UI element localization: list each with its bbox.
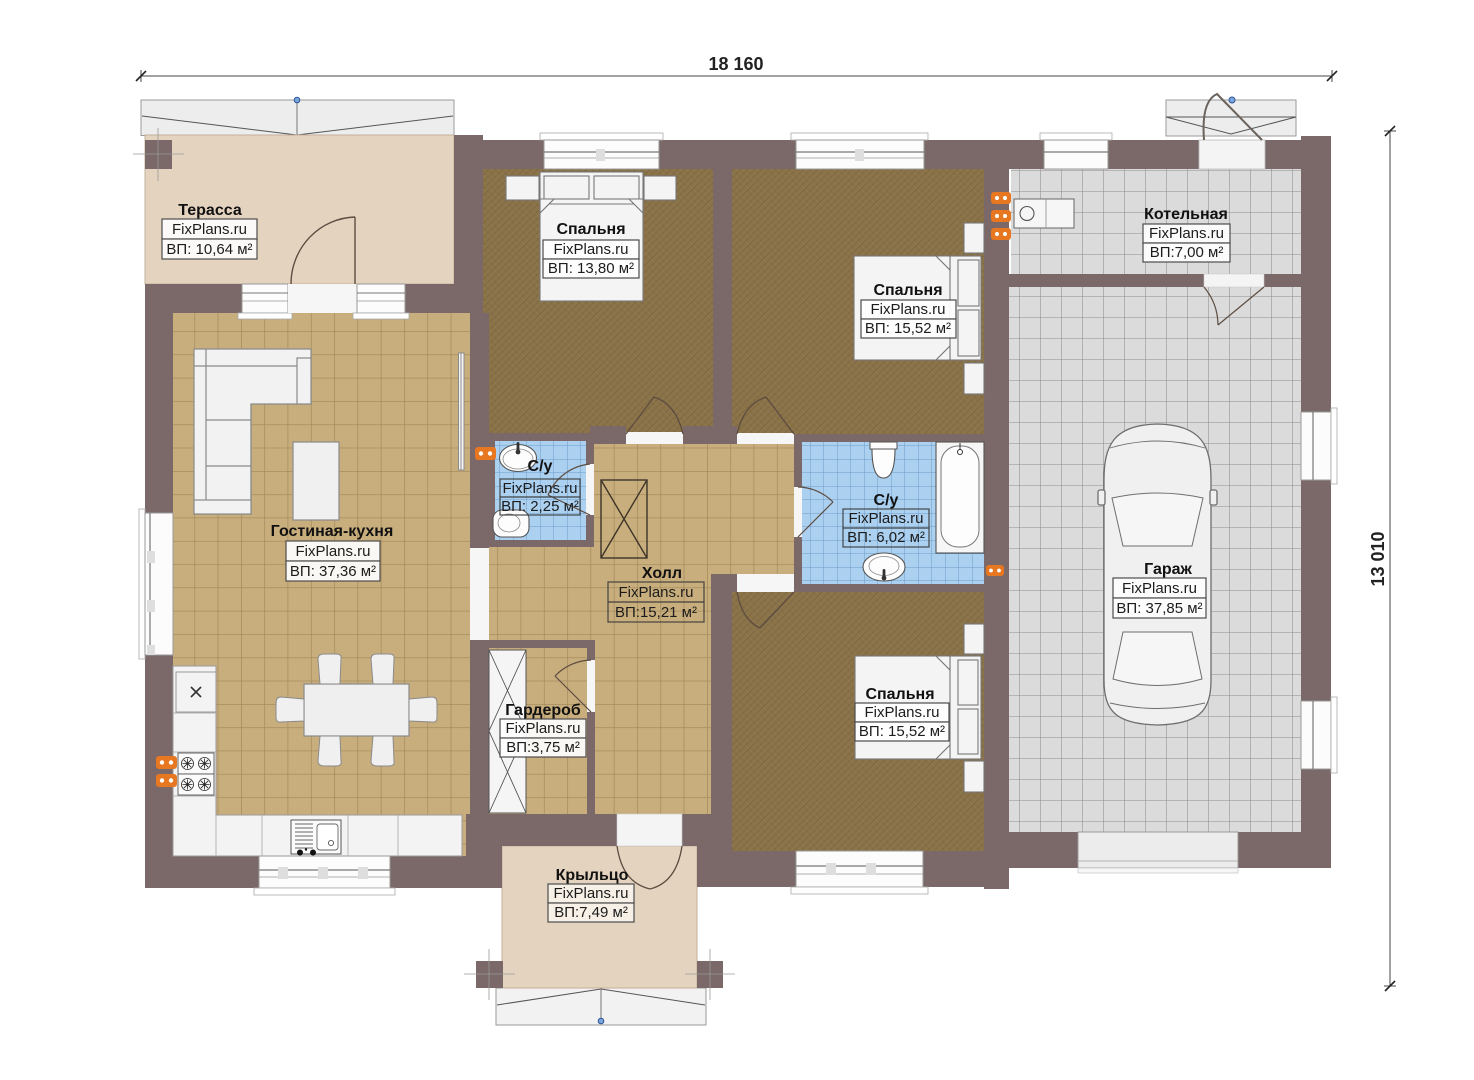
svg-text:FixPlans.ru: FixPlans.ru (1149, 225, 1224, 242)
svg-text:ВП: 15,52 м²: ВП: 15,52 м² (865, 320, 951, 337)
svg-text:Гостиная-кухня: Гостиная-кухня (271, 523, 394, 540)
svg-text:13 010: 13 010 (1368, 531, 1388, 586)
svg-text:FixPlans.ru: FixPlans.ru (870, 301, 945, 318)
svg-text:FixPlans.ru: FixPlans.ru (172, 221, 247, 238)
svg-text:ВП: 37,85 м²: ВП: 37,85 м² (1116, 600, 1202, 617)
svg-text:FixPlans.ru: FixPlans.ru (295, 543, 370, 560)
svg-text:ВП: 6,02 м²: ВП: 6,02 м² (847, 529, 925, 546)
svg-text:С/у: С/у (528, 458, 553, 475)
svg-text:18 160: 18 160 (708, 54, 763, 74)
svg-text:ВП:7,00 м²: ВП:7,00 м² (1150, 244, 1224, 261)
svg-text:Терасса: Терасса (178, 202, 242, 219)
svg-text:Холл: Холл (642, 565, 682, 582)
svg-text:С/у: С/у (874, 492, 899, 509)
svg-text:ВП:7,49 м²: ВП:7,49 м² (554, 904, 628, 921)
svg-text:FixPlans.ru: FixPlans.ru (618, 584, 693, 601)
svg-text:FixPlans.ru: FixPlans.ru (864, 704, 939, 721)
svg-text:Спальня: Спальня (556, 221, 625, 238)
svg-text:FixPlans.ru: FixPlans.ru (505, 720, 580, 737)
svg-text:ВП: 10,64 м²: ВП: 10,64 м² (166, 241, 252, 258)
svg-text:Спальня: Спальня (865, 686, 934, 703)
svg-text:Гардероб: Гардероб (505, 702, 581, 719)
svg-text:FixPlans.ru: FixPlans.ru (848, 510, 923, 527)
svg-text:ВП:15,21 м²: ВП:15,21 м² (615, 604, 697, 621)
svg-text:Спальня: Спальня (873, 282, 942, 299)
svg-text:ВП:3,75 м²: ВП:3,75 м² (506, 739, 580, 756)
svg-text:Гараж: Гараж (1144, 561, 1192, 578)
svg-text:ВП: 13,80 м²: ВП: 13,80 м² (548, 260, 634, 277)
svg-text:FixPlans.ru: FixPlans.ru (502, 480, 577, 497)
svg-text:ВП: 2,25 м²: ВП: 2,25 м² (501, 498, 579, 515)
svg-text:FixPlans.ru: FixPlans.ru (1122, 580, 1197, 597)
svg-text:FixPlans.ru: FixPlans.ru (553, 241, 628, 258)
svg-text:ВП: 15,52 м²: ВП: 15,52 м² (859, 723, 945, 740)
svg-text:Котельная: Котельная (1144, 206, 1228, 223)
svg-text:FixPlans.ru: FixPlans.ru (553, 885, 628, 902)
svg-text:Крыльцо: Крыльцо (556, 867, 629, 884)
svg-text:ВП: 37,36 м²: ВП: 37,36 м² (290, 563, 376, 580)
